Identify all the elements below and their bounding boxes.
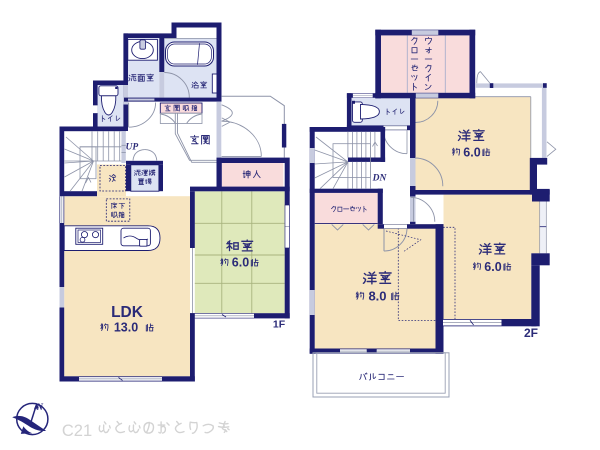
svg-text:13.0: 13.0 [114,321,138,335]
svg-text:6.0: 6.0 [232,256,249,270]
svg-text:N: N [36,402,44,412]
svg-text:1F: 1F [273,319,286,331]
svg-text:DN: DN [372,174,388,184]
svg-text:6.0: 6.0 [484,260,501,274]
svg-text:8.0: 8.0 [368,288,386,303]
svg-text:2F: 2F [524,326,538,340]
svg-text:C21: C21 [62,422,92,440]
svg-text:6.0: 6.0 [463,145,480,159]
svg-text:LDK: LDK [111,304,144,321]
svg-text:UP: UP [125,143,138,153]
